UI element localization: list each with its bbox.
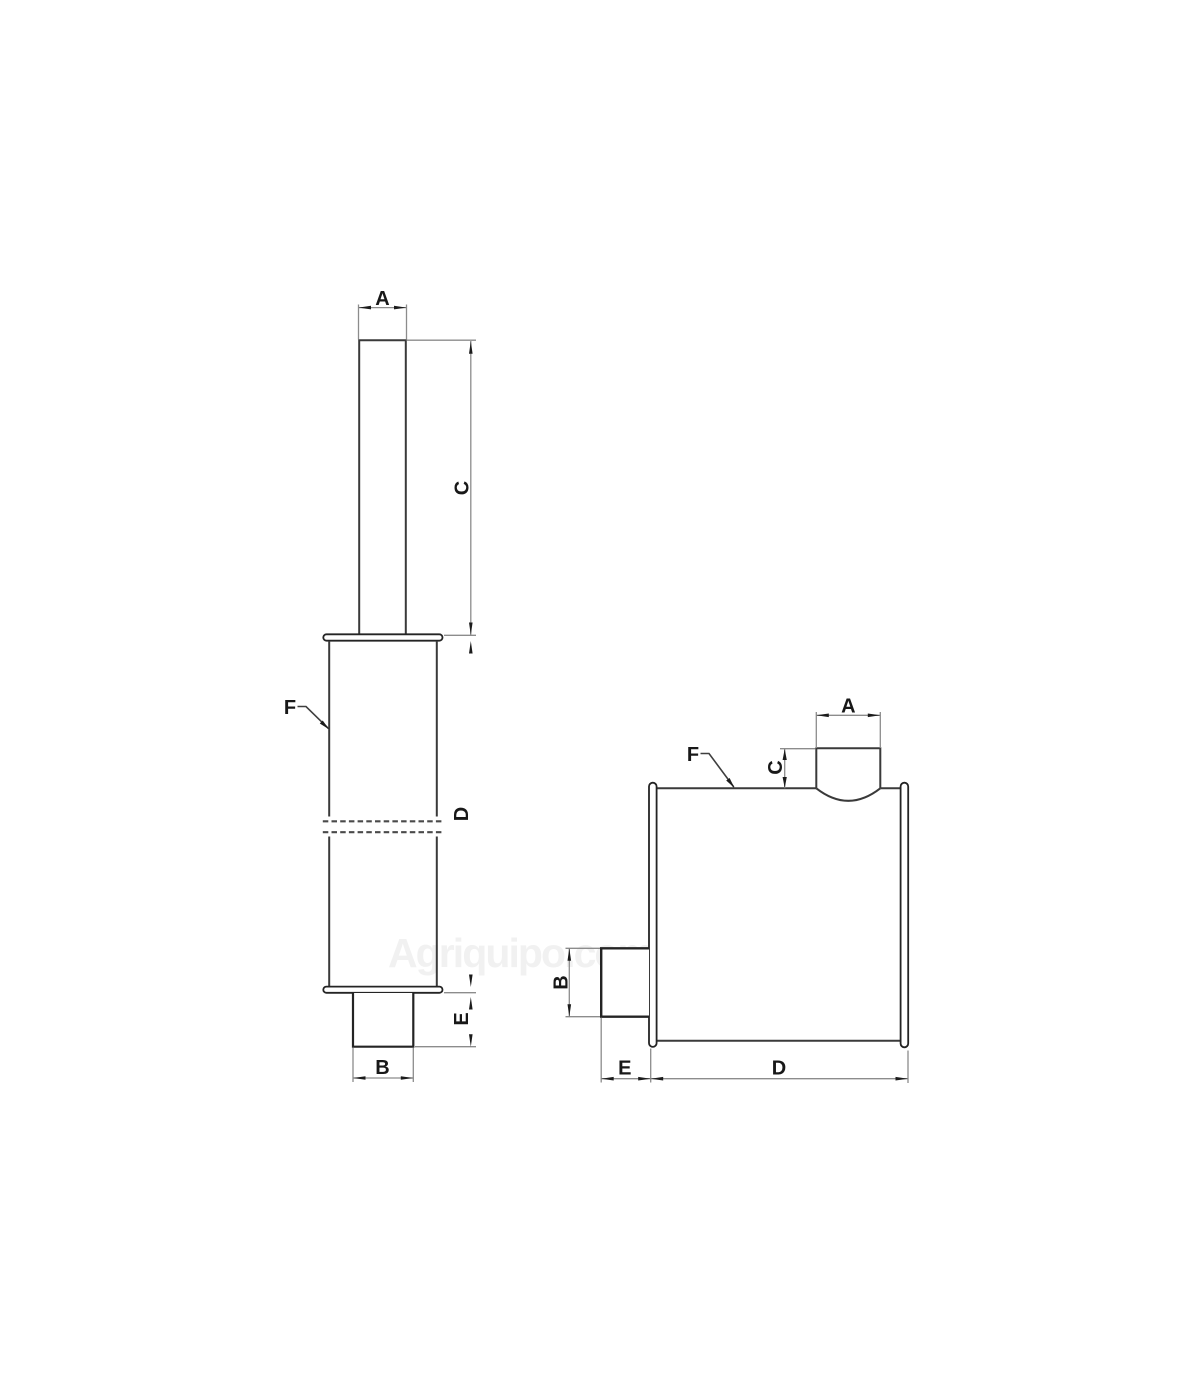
svg-text:B: B [550, 975, 572, 989]
svg-text:A: A [841, 696, 855, 718]
svg-text:A: A [375, 288, 389, 310]
svg-text:F: F [284, 697, 296, 719]
svg-text:C: C [765, 760, 787, 774]
svg-text:F: F [687, 744, 699, 766]
svg-text:E: E [451, 1012, 473, 1025]
svg-text:E: E [618, 1058, 631, 1080]
svg-text:D: D [451, 807, 473, 821]
svg-text:C: C [452, 481, 474, 495]
svg-text:B: B [375, 1057, 389, 1079]
svg-text:D: D [772, 1058, 786, 1080]
